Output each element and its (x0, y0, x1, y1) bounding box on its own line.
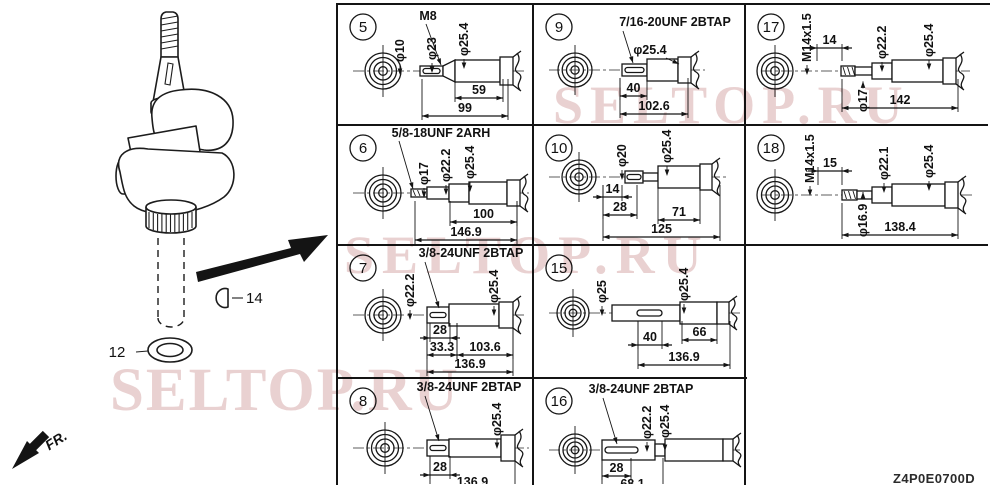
svg-text:71: 71 (672, 205, 686, 219)
callout-12-label: 12 (109, 344, 126, 361)
front-direction-arrow (12, 434, 46, 469)
svg-text:7: 7 (359, 260, 367, 277)
svg-text:66: 66 (693, 325, 707, 339)
drawing-code: Z4P0E0700D (893, 471, 975, 488)
svg-text:28: 28 (610, 461, 624, 475)
svg-text:15: 15 (823, 156, 837, 170)
svg-text:φ22.1: φ22.1 (877, 147, 891, 180)
svg-text:125: 125 (651, 222, 672, 236)
svg-text:8: 8 (359, 393, 367, 410)
svg-text:14: 14 (823, 33, 837, 47)
spec-cell-18: 18M14x1.5φ22.1φ25.4φ16.915138.4 (745, 125, 990, 245)
svg-text:5: 5 (359, 19, 367, 36)
spec-cell-7: 73/8-24UNF 2BTAPφ22.2φ25.42833.3103.6136… (337, 245, 533, 378)
svg-text:142: 142 (890, 93, 911, 107)
svg-text:10: 10 (551, 140, 568, 157)
svg-text:φ25.4: φ25.4 (463, 146, 477, 179)
svg-text:φ25: φ25 (595, 280, 609, 303)
svg-text:φ16.9: φ16.9 (856, 204, 870, 237)
svg-text:3/8-24UNF 2BTAP: 3/8-24UNF 2BTAP (417, 380, 522, 394)
callout-14-label: 14 (246, 290, 263, 307)
svg-text:M14x1.5: M14x1.5 (803, 134, 817, 183)
spec-cell-16: 163/8-24UNF 2BTAPφ22.2φ25.42868.1 (533, 378, 745, 484)
svg-text:103.6: 103.6 (469, 340, 500, 354)
svg-text:φ25.4: φ25.4 (922, 145, 936, 178)
svg-text:138.4: 138.4 (884, 220, 915, 234)
svg-text:28: 28 (433, 460, 447, 474)
spec-cell-6: 65/8-18UNF 2ARHφ17φ22.2φ25.4100146.9 (337, 125, 533, 245)
svg-text:68.1: 68.1 (620, 477, 644, 484)
svg-text:99: 99 (458, 101, 472, 115)
spec-cell-10: 10φ20φ25.4142871125 (533, 125, 745, 245)
svg-text:18: 18 (763, 140, 780, 157)
crankshaft-figure: 14 12 FR. (0, 0, 340, 500)
svg-text:28: 28 (433, 323, 447, 337)
svg-text:17: 17 (763, 19, 780, 36)
crankshaft-parts-diagram-page: 14 12 FR. 5M8φ10φ23φ25.4599997/16-20UNF … (0, 0, 1000, 500)
svg-text:φ22.2: φ22.2 (403, 274, 417, 307)
svg-text:15: 15 (551, 260, 568, 277)
svg-text:φ23: φ23 (425, 37, 439, 60)
svg-text:φ25.4: φ25.4 (633, 43, 666, 57)
woodruff-key (216, 289, 228, 308)
svg-text:136.9: 136.9 (457, 475, 488, 484)
svg-text:φ22.2: φ22.2 (875, 26, 889, 59)
pointer-arrow (196, 235, 328, 282)
svg-text:M14x1.5: M14x1.5 (800, 13, 814, 62)
svg-text:M8: M8 (419, 9, 436, 23)
svg-text:φ10: φ10 (393, 39, 407, 62)
svg-text:φ25.4: φ25.4 (457, 23, 471, 56)
washer (148, 338, 192, 362)
svg-text:136.9: 136.9 (454, 357, 485, 371)
svg-text:φ25.4: φ25.4 (658, 405, 672, 438)
svg-text:28: 28 (613, 200, 627, 214)
spec-cell-8: 83/8-24UNF 2BTAPφ25.428136.9 (337, 378, 533, 484)
svg-text:102.6: 102.6 (638, 99, 669, 113)
spec-cell-17: 17M14x1.5φ22.2φ25.4φ1714142 (745, 4, 990, 125)
svg-text:33.3: 33.3 (430, 340, 454, 354)
svg-text:14: 14 (606, 182, 620, 196)
svg-text:3/8-24UNF 2BTAP: 3/8-24UNF 2BTAP (589, 382, 694, 396)
svg-text:40: 40 (627, 81, 641, 95)
svg-text:146.9: 146.9 (450, 225, 481, 239)
svg-text:59: 59 (472, 83, 486, 97)
svg-text:136.9: 136.9 (668, 350, 699, 364)
spec-cell-15: 15φ25φ25.44066136.9 (533, 245, 745, 378)
hidden-shaft-outline (158, 238, 184, 327)
svg-text:φ22.2: φ22.2 (439, 149, 453, 182)
svg-text:φ25.4: φ25.4 (677, 268, 691, 301)
svg-text:7/16-20UNF 2BTAP: 7/16-20UNF 2BTAP (619, 15, 731, 29)
front-direction-label: FR. (42, 427, 70, 453)
svg-text:φ25.4: φ25.4 (490, 403, 504, 436)
svg-text:100: 100 (473, 207, 494, 221)
spec-cell-5: 5M8φ10φ23φ25.45999 (337, 4, 533, 125)
svg-text:9: 9 (555, 19, 563, 36)
spec-cell-9: 97/16-20UNF 2BTAPφ25.440102.6 (533, 4, 745, 125)
svg-text:φ25.4: φ25.4 (660, 130, 674, 163)
svg-text:16: 16 (551, 393, 568, 410)
svg-text:40: 40 (643, 330, 657, 344)
svg-text:φ25.4: φ25.4 (487, 270, 501, 303)
svg-text:5/8-18UNF 2ARH: 5/8-18UNF 2ARH (392, 126, 491, 140)
svg-text:3/8-24UNF 2BTAP: 3/8-24UNF 2BTAP (419, 246, 524, 260)
svg-text:φ22.2: φ22.2 (640, 406, 654, 439)
svg-text:φ25.4: φ25.4 (922, 24, 936, 57)
svg-text:φ17: φ17 (417, 162, 431, 185)
svg-text:φ20: φ20 (615, 144, 629, 167)
svg-text:6: 6 (359, 140, 367, 157)
